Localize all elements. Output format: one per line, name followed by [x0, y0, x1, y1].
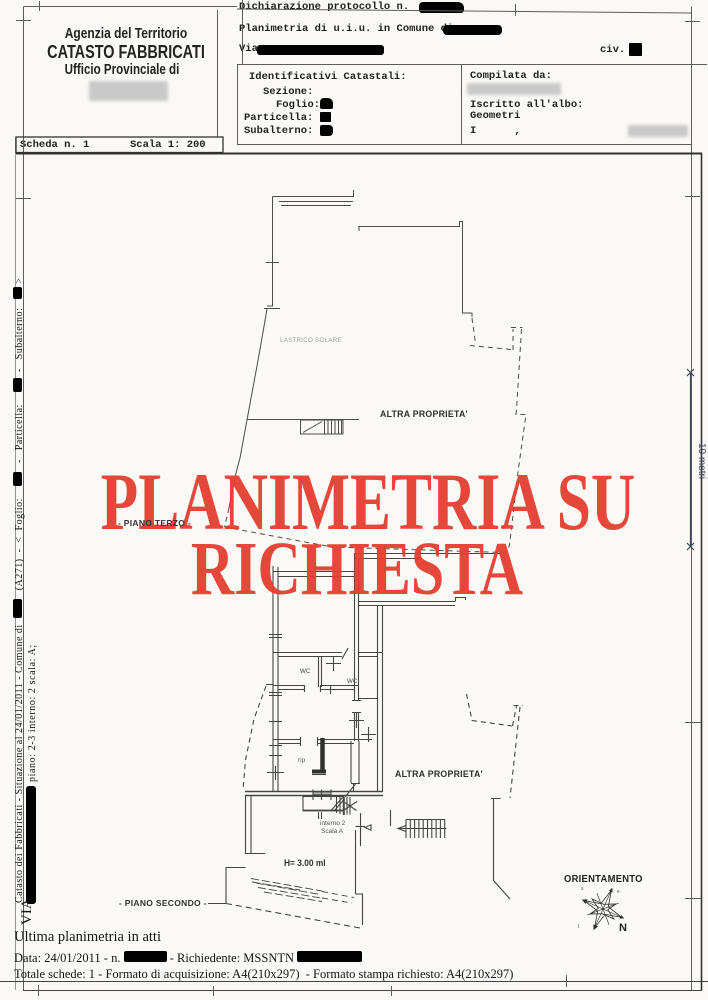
svg-text:RICHIESTA: RICHIESTA — [191, 526, 523, 611]
svg-text:10 metri: 10 metri — [696, 443, 707, 479]
